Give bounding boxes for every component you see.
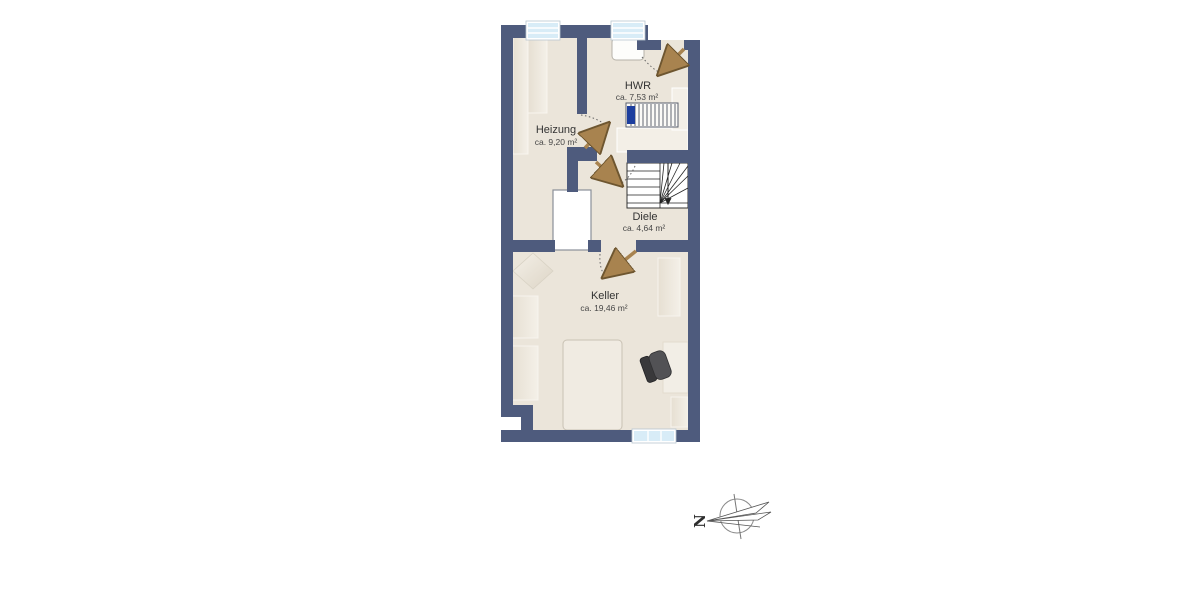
winder-stairs bbox=[627, 163, 688, 208]
shaft-box bbox=[553, 190, 591, 250]
bed bbox=[563, 340, 622, 430]
room-area-diele: ca. 4,64 m² bbox=[623, 223, 666, 233]
room-label-diele: Diele bbox=[632, 211, 657, 223]
radiator bbox=[626, 103, 678, 127]
shelf-left-lower bbox=[511, 346, 538, 400]
room-label-keller: Keller bbox=[591, 290, 619, 302]
wall-left bbox=[501, 25, 513, 417]
room-area-heizung: ca. 9,20 m² bbox=[535, 137, 578, 147]
window-hwr bbox=[611, 21, 645, 40]
wall-hwr-diele bbox=[627, 150, 688, 163]
wall-heizung-hwr bbox=[577, 37, 587, 114]
wall-diele-keller bbox=[636, 240, 688, 252]
radiator-accent bbox=[627, 106, 635, 124]
compass-rose-icon: N bbox=[691, 494, 771, 539]
shelf-left-upper bbox=[511, 296, 538, 338]
window-keller bbox=[632, 429, 676, 443]
room-label-hwr: HWR bbox=[625, 80, 651, 92]
compass-north-label: N bbox=[691, 514, 709, 528]
wall-heizung-keller bbox=[513, 240, 555, 252]
shelf-right-upper bbox=[658, 258, 680, 316]
room-area-keller: ca. 19,46 m² bbox=[580, 303, 627, 313]
room-area-hwr: ca. 7,53 m² bbox=[616, 92, 659, 102]
window-heizung bbox=[526, 21, 560, 40]
floor-plan-canvas: Heizung ca. 9,20 m² HWR ca. 7,53 m² Diel… bbox=[0, 0, 1200, 600]
wall-right bbox=[688, 40, 700, 442]
room-label-heizung: Heizung bbox=[536, 124, 576, 136]
floor-plan-drawing: Heizung ca. 9,20 m² HWR ca. 7,53 m² Diel… bbox=[0, 0, 1200, 600]
shelf-right-lower bbox=[671, 397, 688, 427]
